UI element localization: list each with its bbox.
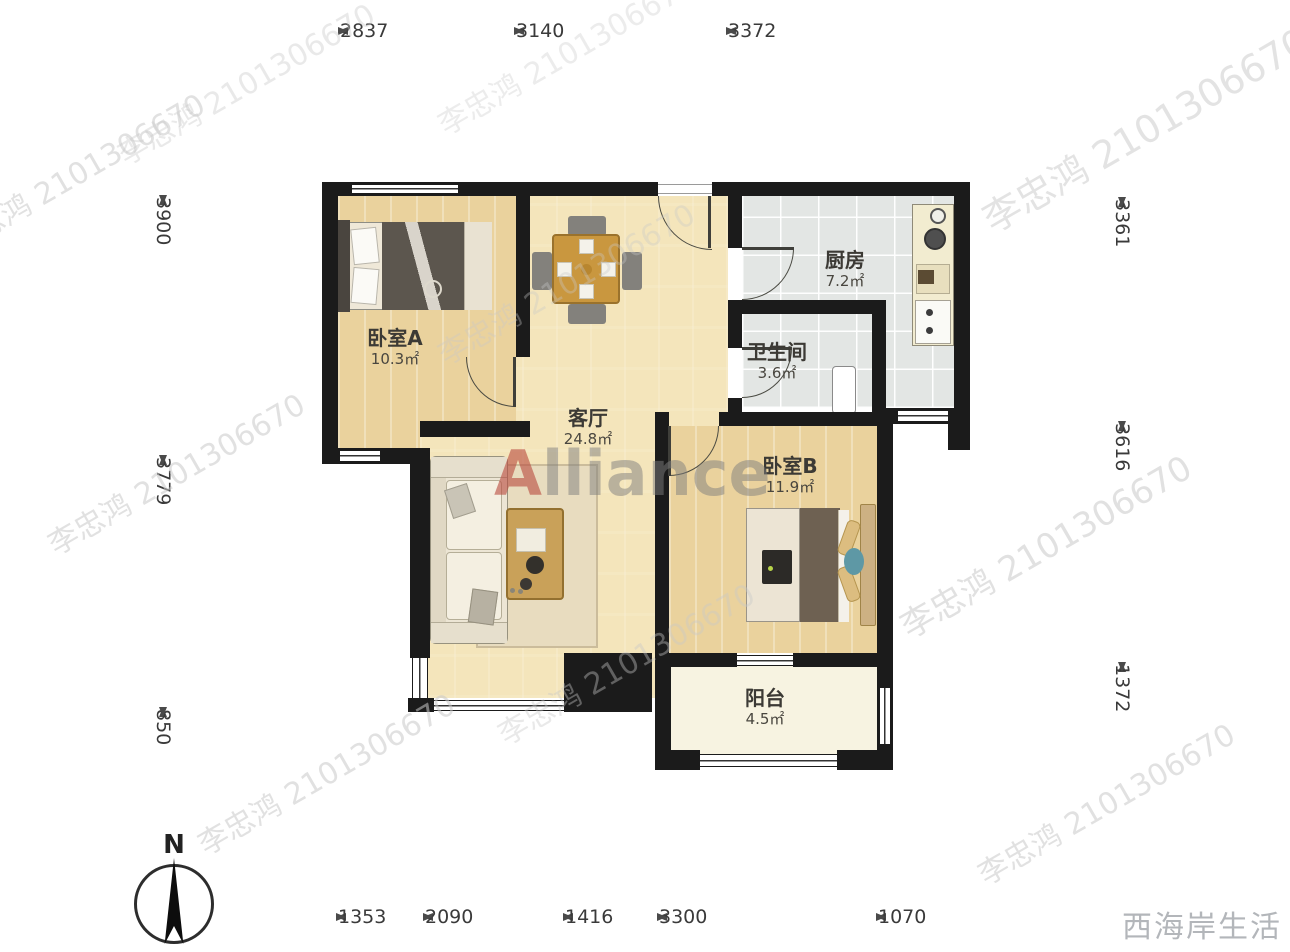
dim-bottom-4: 3300: [657, 906, 876, 928]
tv-light: [768, 566, 773, 571]
window: [898, 410, 950, 422]
wall: [408, 698, 434, 712]
dim-bottom-3: 1416: [563, 906, 657, 928]
plate: [579, 284, 594, 299]
dim-top-2: 3140: [514, 20, 726, 42]
sofa-armrest: [431, 622, 507, 643]
room-label-kitchen: 厨房: [785, 244, 905, 273]
room-label-bathroom: 卫生间: [712, 336, 842, 365]
arrow-down-icon: [1118, 662, 1126, 672]
coffee-table: [506, 508, 564, 600]
watermark-text: 李忠鸿 2101306670: [890, 441, 1200, 648]
wall: [655, 412, 669, 667]
wall: [728, 196, 742, 248]
teacup: [510, 588, 515, 593]
wall: [719, 412, 886, 426]
arrow-down-icon: [159, 707, 167, 717]
door-leaf-bedroom-b: [668, 426, 671, 476]
wall: [872, 300, 886, 416]
burner: [926, 327, 933, 334]
plate: [557, 262, 572, 277]
arrow-right-icon: [726, 27, 736, 35]
arrow-right-icon: [336, 913, 346, 921]
wall: [516, 182, 530, 357]
room-area-kitchen: 7.2㎡: [785, 270, 905, 291]
floorplan-canvas: 2837 3140 3372 1353 2090 1416 3300 1070 …: [0, 0, 1290, 952]
dim-right-2: 3616: [1111, 421, 1133, 662]
sofa-back: [431, 457, 446, 643]
kettle: [526, 556, 544, 574]
plate: [579, 239, 594, 254]
room-label-living: 客厅: [518, 402, 658, 431]
room-label-bedroom-a: 卧室A: [330, 322, 460, 351]
bedroom-a-floor: [338, 421, 420, 451]
dim-bottom-2: 2090: [423, 906, 563, 928]
north-label: N: [134, 830, 214, 856]
bed-a-sheet: [464, 222, 492, 310]
room-area-living: 24.8㎡: [518, 428, 658, 449]
dining-chair: [622, 252, 642, 290]
window: [340, 450, 380, 462]
tv: [762, 550, 792, 584]
pillow: [350, 267, 379, 305]
window: [879, 688, 891, 744]
room-label-balcony: 阳台: [700, 682, 830, 711]
burner: [926, 309, 933, 316]
wall: [948, 408, 970, 450]
wall: [655, 750, 700, 770]
arrow-down-icon: [1118, 421, 1126, 431]
arrow-right-icon: [338, 27, 348, 35]
window: [700, 754, 837, 767]
room-area-balcony: 4.5㎡: [700, 708, 830, 729]
throw-blanket: [468, 588, 498, 625]
wall: [420, 421, 530, 437]
dim-bottom-1: 1353: [336, 906, 423, 928]
arrow-down-icon: [159, 195, 167, 205]
dining-chair: [568, 216, 606, 236]
corner-brand-text: 西海岸生活: [1122, 902, 1282, 946]
room-label-bedroom-b: 卧室B: [725, 450, 855, 479]
wall: [712, 182, 970, 196]
window: [412, 658, 428, 702]
pillow: [350, 227, 380, 266]
dining-chair: [532, 252, 552, 290]
room-area-bedroom-b: 11.9㎡: [725, 476, 855, 497]
arrow-right-icon: [876, 913, 886, 921]
dim-top-3: 3372: [726, 20, 952, 42]
teacup: [518, 589, 523, 594]
arrow-right-icon: [657, 913, 667, 921]
wall: [564, 653, 652, 712]
arrow-right-icon: [563, 913, 573, 921]
arrow-right-icon: [423, 913, 433, 921]
arrow-right-icon: [514, 27, 524, 35]
teacup: [520, 578, 532, 590]
watermark-text: 李忠鸿 2101306670: [968, 710, 1241, 893]
room-area-bedroom-a: 10.3㎡: [330, 348, 460, 369]
sink: [924, 228, 946, 250]
faucet: [930, 208, 946, 224]
wall: [877, 408, 893, 668]
stove: [915, 300, 951, 344]
balcony-door-window: [737, 655, 793, 666]
counter-item: [918, 270, 934, 284]
blanket: [800, 508, 840, 622]
entry-opening: [658, 184, 712, 194]
door-leaf-bedroom-a: [513, 357, 516, 407]
wall: [728, 300, 886, 314]
table-center: [581, 264, 592, 275]
window: [434, 700, 564, 711]
door-leaf-entry: [708, 196, 711, 248]
table-mat: [516, 528, 546, 552]
sofa-armrest: [431, 457, 507, 478]
bed-emblem: [424, 280, 442, 298]
dim-bottom-5: 1070: [876, 906, 952, 928]
plate: [601, 262, 616, 277]
dim-left-3: 850: [152, 707, 174, 764]
arrow-down-icon: [1118, 197, 1126, 207]
watermark-text: 李忠鸿 2101306670: [0, 80, 212, 263]
dim-right-1: 3361: [1111, 197, 1133, 421]
arrow-down-icon: [159, 455, 167, 465]
dining-chair: [568, 304, 606, 324]
watermark-text: 李忠鸿 2101306670: [38, 380, 311, 563]
round-pillow: [844, 548, 864, 575]
dim-right-3: 1372: [1111, 662, 1133, 753]
bed-a-headboard: [338, 220, 350, 312]
dim-left-1: 3900: [152, 195, 174, 455]
blanket: [382, 222, 464, 310]
dim-top-1: 2837: [338, 20, 514, 42]
dim-left-2: 3779: [152, 455, 174, 707]
room-area-bathroom: 3.6㎡: [712, 362, 842, 383]
window: [352, 184, 458, 194]
wall: [410, 448, 430, 658]
